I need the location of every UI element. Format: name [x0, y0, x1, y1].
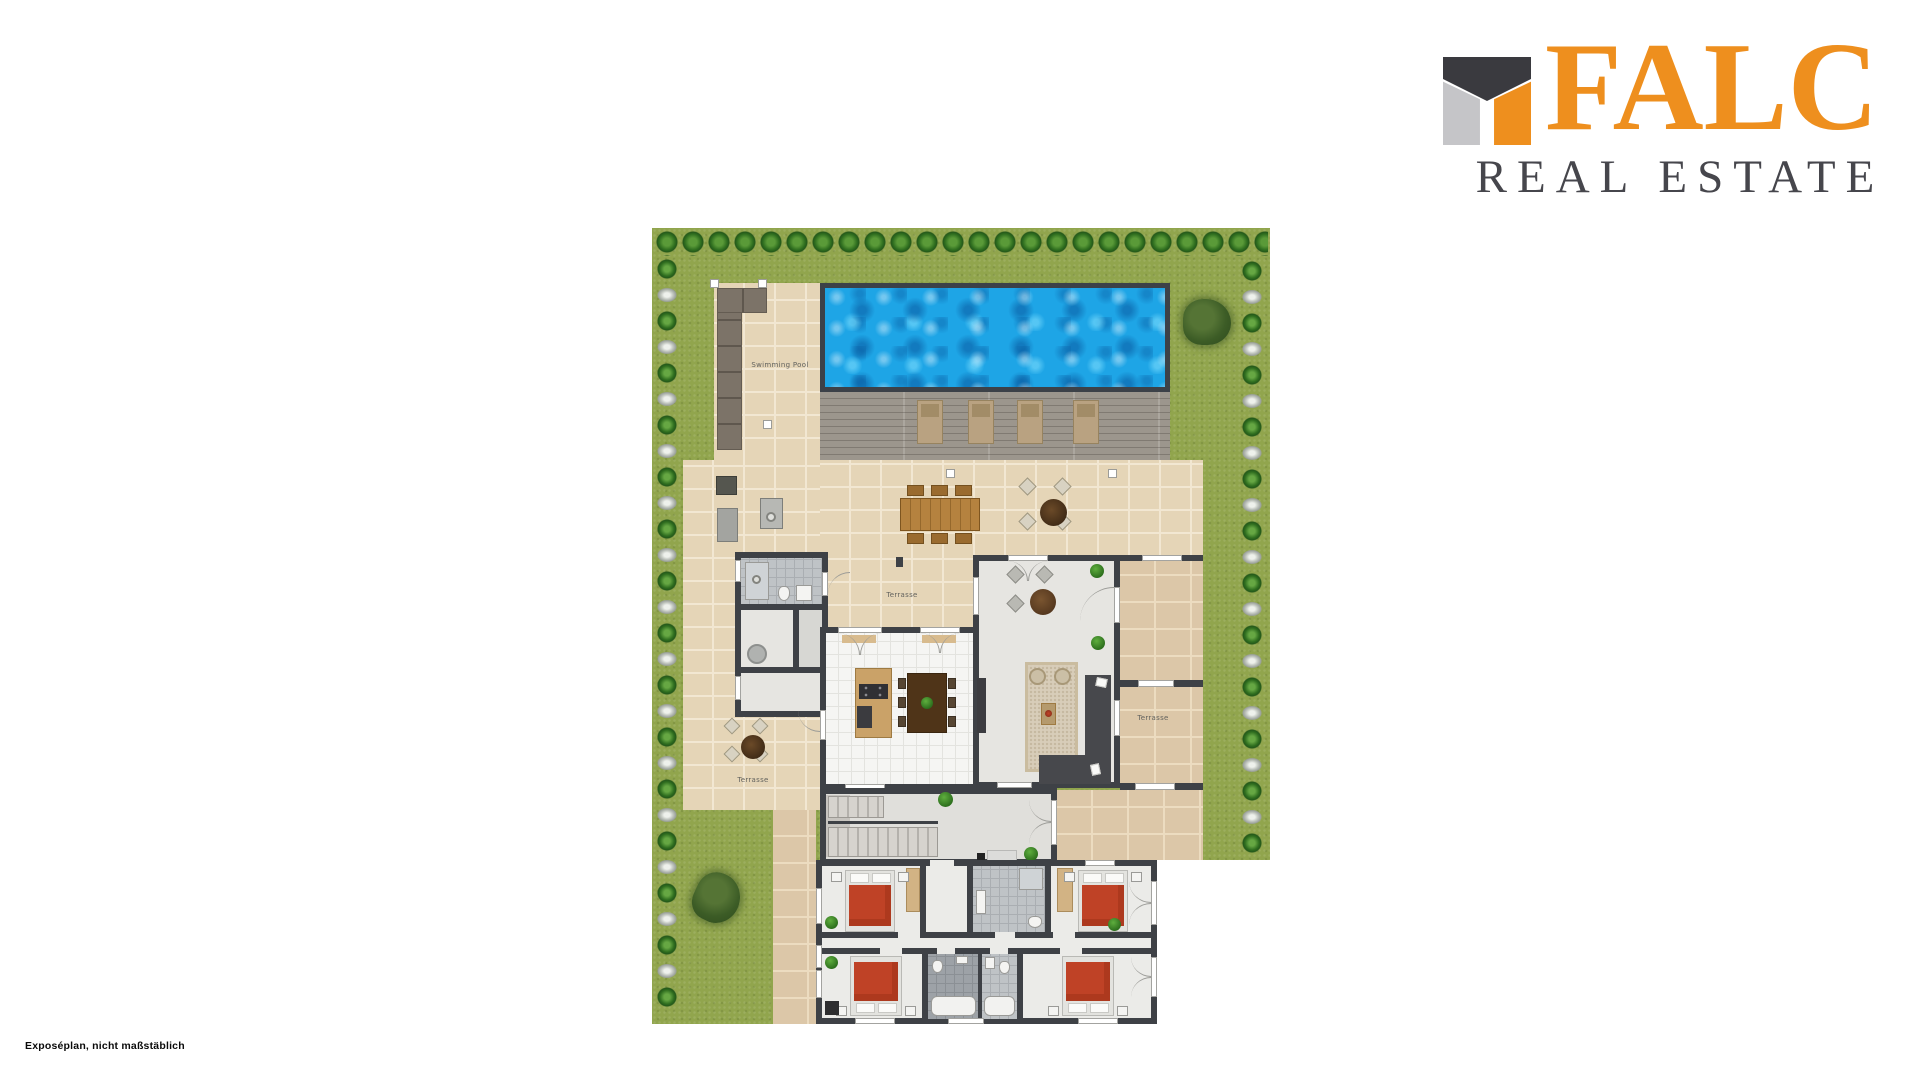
bathtub	[931, 996, 976, 1016]
annex-storage	[799, 610, 822, 667]
label-terrasse-main: Terrasse	[878, 590, 926, 600]
outdoor-cabinet	[717, 508, 738, 542]
toilet	[932, 960, 943, 973]
flower-icon	[1045, 710, 1052, 717]
wall	[1045, 866, 1051, 932]
pergola-post	[946, 469, 955, 478]
living-window	[973, 577, 979, 615]
nightstand	[1048, 1006, 1059, 1016]
outdoor-sink	[766, 512, 776, 522]
dining-chair	[898, 716, 906, 727]
dining-chair	[898, 697, 906, 708]
pool-deck	[820, 392, 1170, 460]
cooktop	[859, 684, 888, 699]
door-opening	[898, 932, 920, 938]
outdoor-sofa	[717, 288, 767, 313]
terrace-window	[1138, 680, 1174, 687]
laptop	[977, 853, 985, 860]
table-plant-icon	[921, 697, 933, 709]
dining-chair	[948, 678, 956, 689]
living-terrace-door	[1008, 555, 1048, 561]
dresser	[825, 1001, 839, 1015]
terrace-window	[1135, 783, 1175, 790]
plant-icon	[825, 916, 838, 929]
label-terrasse-right: Terrasse	[1129, 713, 1177, 723]
pergola-post	[758, 279, 767, 288]
sink	[976, 890, 986, 914]
shrub-icon	[1183, 299, 1231, 345]
armchair	[1029, 668, 1046, 685]
round-dining-table	[1030, 589, 1056, 615]
kitchen-terrace-door	[838, 627, 882, 633]
kitchen-cabinet	[857, 706, 872, 728]
stair-rail	[828, 821, 938, 824]
bush-column-right-icon	[1239, 258, 1265, 856]
door-opening	[930, 860, 954, 866]
plant-icon	[938, 792, 953, 807]
bed	[1062, 956, 1114, 1016]
entrance-door	[820, 710, 826, 740]
kitchen-terrace-door	[920, 627, 960, 633]
garden-chair	[907, 533, 924, 544]
plant-icon	[1108, 918, 1121, 931]
bedroom-window	[1085, 860, 1115, 866]
sink	[956, 956, 968, 964]
nightstand	[898, 872, 909, 882]
bbq-grill	[716, 476, 737, 495]
plant-icon	[1024, 847, 1038, 861]
wall	[822, 932, 1151, 938]
sun-lounger	[1073, 400, 1099, 444]
bedroom-terrace-door	[1151, 957, 1157, 997]
toilet	[778, 586, 790, 601]
toilet	[999, 961, 1010, 974]
plant-icon	[825, 956, 838, 969]
pergola-post	[710, 279, 719, 288]
garden-chair	[907, 485, 924, 496]
washing-machine	[796, 585, 812, 601]
pergola-post	[763, 420, 772, 429]
bush-column-left-icon	[654, 256, 680, 1008]
annex-door	[735, 676, 741, 700]
wall	[1017, 954, 1023, 1019]
dining-chair	[948, 697, 956, 708]
living-window	[1114, 700, 1120, 736]
dining-chair	[948, 716, 956, 727]
bedroom-window	[816, 970, 822, 998]
nightstand	[1064, 872, 1075, 882]
terrace-window	[1142, 555, 1182, 561]
door-opening	[880, 948, 902, 954]
dining-chair	[898, 678, 906, 689]
pergola-post	[1108, 469, 1117, 478]
plant-icon	[1090, 564, 1104, 578]
wall	[920, 866, 926, 932]
sink	[985, 957, 995, 969]
staircase	[828, 796, 884, 818]
living-right-door	[1114, 587, 1120, 623]
terrace-hall-front	[1057, 790, 1203, 860]
plant-icon	[1091, 636, 1105, 650]
annex-window	[735, 560, 741, 582]
nightstand	[1117, 1006, 1128, 1016]
label-swimming-pool: Swimming Pool	[748, 360, 812, 370]
door-opening	[1053, 932, 1075, 938]
label-terrasse-garden: Terrasse	[729, 775, 777, 785]
door-opening	[1060, 948, 1082, 954]
boiler	[747, 644, 767, 664]
nightstand	[831, 872, 842, 882]
hall-terrace-door	[1051, 800, 1057, 845]
floor-plan: Swimming Pool Terrasse Terrasse Terrasse	[650, 226, 1272, 1026]
bistro-table	[1040, 499, 1067, 526]
garden-chair	[955, 485, 972, 496]
garden-chair	[931, 485, 948, 496]
plan-disclaimer: Exposéplan, nicht maßstäblich	[25, 1040, 185, 1052]
bathtub	[984, 996, 1015, 1016]
armchair	[1054, 668, 1071, 685]
bistro-table	[741, 735, 765, 759]
bedroom-window	[1078, 1018, 1118, 1024]
garden-chair	[955, 533, 972, 544]
door-opening	[995, 932, 1015, 938]
swimming-pool	[820, 283, 1170, 392]
bed	[845, 870, 895, 932]
garden-table	[900, 498, 980, 531]
terrace-main	[820, 460, 1203, 555]
shower-drain	[752, 575, 761, 584]
brand-tagline: REAL ESTATE	[1440, 152, 1920, 202]
brand-name: FALC	[1545, 28, 1877, 148]
staircase	[828, 827, 938, 857]
annex-wall	[741, 667, 822, 673]
nightstand	[905, 1006, 916, 1016]
sun-lounger	[917, 400, 943, 444]
garden-chair	[931, 533, 948, 544]
expose-page: FALC REAL ESTATE Exposéplan, nicht maßst…	[0, 0, 1920, 1080]
sun-lounger	[968, 400, 994, 444]
toilet	[1028, 916, 1042, 928]
tv-sideboard	[977, 678, 986, 733]
garden-path	[773, 810, 816, 1024]
sun-lounger	[1017, 400, 1043, 444]
bedroom-window	[816, 945, 822, 968]
terrace-right-covered	[1120, 555, 1203, 790]
shower	[1019, 868, 1043, 890]
falc-logo-icon	[1443, 57, 1531, 145]
terrace-pillar	[896, 557, 903, 567]
bedroom-window	[948, 1018, 984, 1024]
bedroom-window	[816, 888, 822, 924]
bedroom-terrace-door	[1151, 881, 1157, 925]
bed	[850, 956, 902, 1016]
hedge-row-icon	[654, 230, 1268, 256]
bedroom-window	[855, 1018, 895, 1024]
